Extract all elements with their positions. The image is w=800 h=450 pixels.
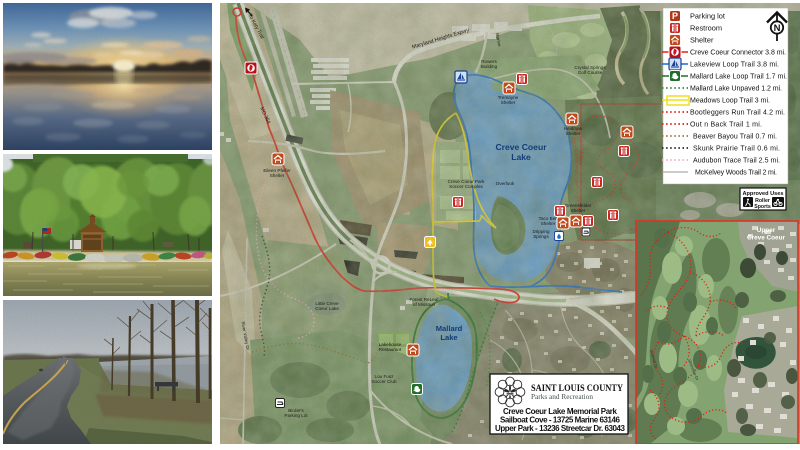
- svg-text:Lakeview Loop Trail 3.8 mi.: Lakeview Loop Trail 3.8 mi.: [690, 62, 779, 69]
- svg-text:Restroom: Restroom: [690, 24, 722, 33]
- svg-text:Upper: Upper: [757, 227, 776, 234]
- svg-text:Mallard: Mallard: [436, 324, 463, 333]
- svg-text:Beaver Bayou Trail 0.7 mi.: Beaver Bayou Trail 0.7 mi.: [693, 134, 777, 141]
- svg-text:Audubon Trace Trail 2.5 mi.: Audubon Trace Trail 2.5 mi.: [693, 158, 780, 165]
- svg-text:Golf Course: Golf Course: [578, 70, 603, 75]
- svg-text:Overlook: Overlook: [496, 181, 515, 186]
- svg-text:Mallard Lake Unpaved 1.2 mi.: Mallard Lake Unpaved 1.2 mi.: [690, 86, 782, 93]
- svg-text:Upper Park - 13236 Streetcar D: Upper Park - 13236 Streetcar Dr. 63043: [495, 424, 626, 433]
- svg-text:Meadows Loop Trail 3 mi.: Meadows Loop Trail 3 mi.: [690, 98, 770, 105]
- svg-text:Bootleggers Run Trail 4.2 mi.: Bootleggers Run Trail 4.2 mi.: [690, 110, 785, 117]
- svg-text:Soccer Complex: Soccer Complex: [449, 184, 483, 189]
- svg-text:Shelter: Shelter: [571, 208, 586, 213]
- svg-text:Shelter: Shelter: [501, 100, 516, 105]
- svg-text:N: N: [774, 23, 781, 34]
- svg-text:Restaurant: Restaurant: [379, 347, 402, 352]
- svg-text:Soccer Club: Soccer Club: [371, 379, 396, 384]
- svg-text:Approved Uses: Approved Uses: [742, 191, 783, 197]
- svg-text:Creve Coeur: Creve Coeur: [747, 235, 786, 242]
- svg-text:Parks and Recreation: Parks and Recreation: [531, 393, 594, 401]
- svg-text:Creve Coeur: Creve Coeur: [495, 142, 547, 152]
- svg-text:Building: Building: [481, 64, 498, 69]
- svg-text:Coeur Lake: Coeur Lake: [315, 306, 339, 311]
- svg-text:Mallard Lake Loop Trail 1.7 mi: Mallard Lake Loop Trail 1.7 mi.: [690, 74, 787, 81]
- svg-text:Springs: Springs: [533, 234, 549, 239]
- svg-text:Parking Lot: Parking Lot: [284, 413, 308, 418]
- svg-text:McKelvey Woods Trail 2 mi.: McKelvey Woods Trail 2 mi.: [695, 170, 777, 177]
- svg-text:Creve Coeur Connector 3.8 mi.: Creve Coeur Connector 3.8 mi.: [690, 50, 786, 57]
- svg-text:Sports: Sports: [754, 204, 771, 210]
- svg-text:Lake: Lake: [511, 152, 531, 162]
- svg-text:of Missouri: of Missouri: [413, 302, 435, 307]
- svg-text:Shelter: Shelter: [566, 131, 581, 136]
- svg-text:Parking lot: Parking lot: [690, 12, 725, 21]
- svg-text:Lake: Lake: [440, 333, 457, 342]
- svg-text:Out n Back Trail 1 mi.: Out n Back Trail 1 mi.: [690, 122, 762, 129]
- svg-text:Shelter: Shelter: [541, 221, 556, 226]
- svg-text:Skunk Prairie Trail 0.6 mi.: Skunk Prairie Trail 0.6 mi.: [693, 146, 780, 153]
- svg-text:Shelter: Shelter: [690, 36, 714, 45]
- svg-text:Shelter: Shelter: [270, 173, 285, 178]
